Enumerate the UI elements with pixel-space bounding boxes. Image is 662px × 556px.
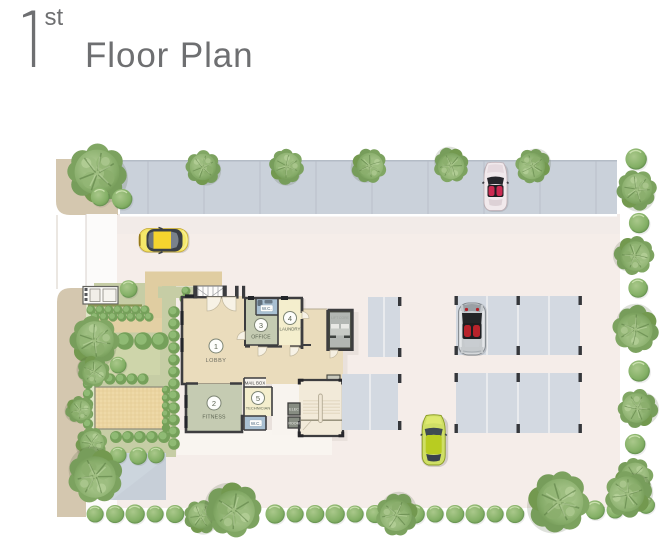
svg-text:OFFICE: OFFICE <box>251 335 271 341</box>
svg-text:W.C.: W.C. <box>251 421 261 426</box>
svg-text:LAUNDRY: LAUNDRY <box>280 327 301 332</box>
svg-text:FITNESS: FITNESS <box>202 415 226 421</box>
svg-text:MAIL BOX: MAIL BOX <box>245 381 266 386</box>
svg-text:1: 1 <box>214 342 218 351</box>
svg-text:LOBBY: LOBBY <box>206 358 227 364</box>
svg-text:5: 5 <box>256 394 260 403</box>
svg-text:LIFT CORE: LIFT CORE <box>331 316 349 320</box>
svg-text:W.C.: W.C. <box>262 306 272 311</box>
svg-text:Floor Plan: Floor Plan <box>85 36 254 75</box>
svg-text:4: 4 <box>288 314 292 323</box>
svg-text:3: 3 <box>259 321 263 330</box>
svg-text:TECHNICIAN: TECHNICIAN <box>246 406 271 411</box>
svg-text:ELEC: ELEC <box>289 408 299 412</box>
svg-text:ROOM: ROOM <box>288 422 299 426</box>
svg-text:st: st <box>45 4 64 31</box>
svg-text:2: 2 <box>212 399 216 408</box>
